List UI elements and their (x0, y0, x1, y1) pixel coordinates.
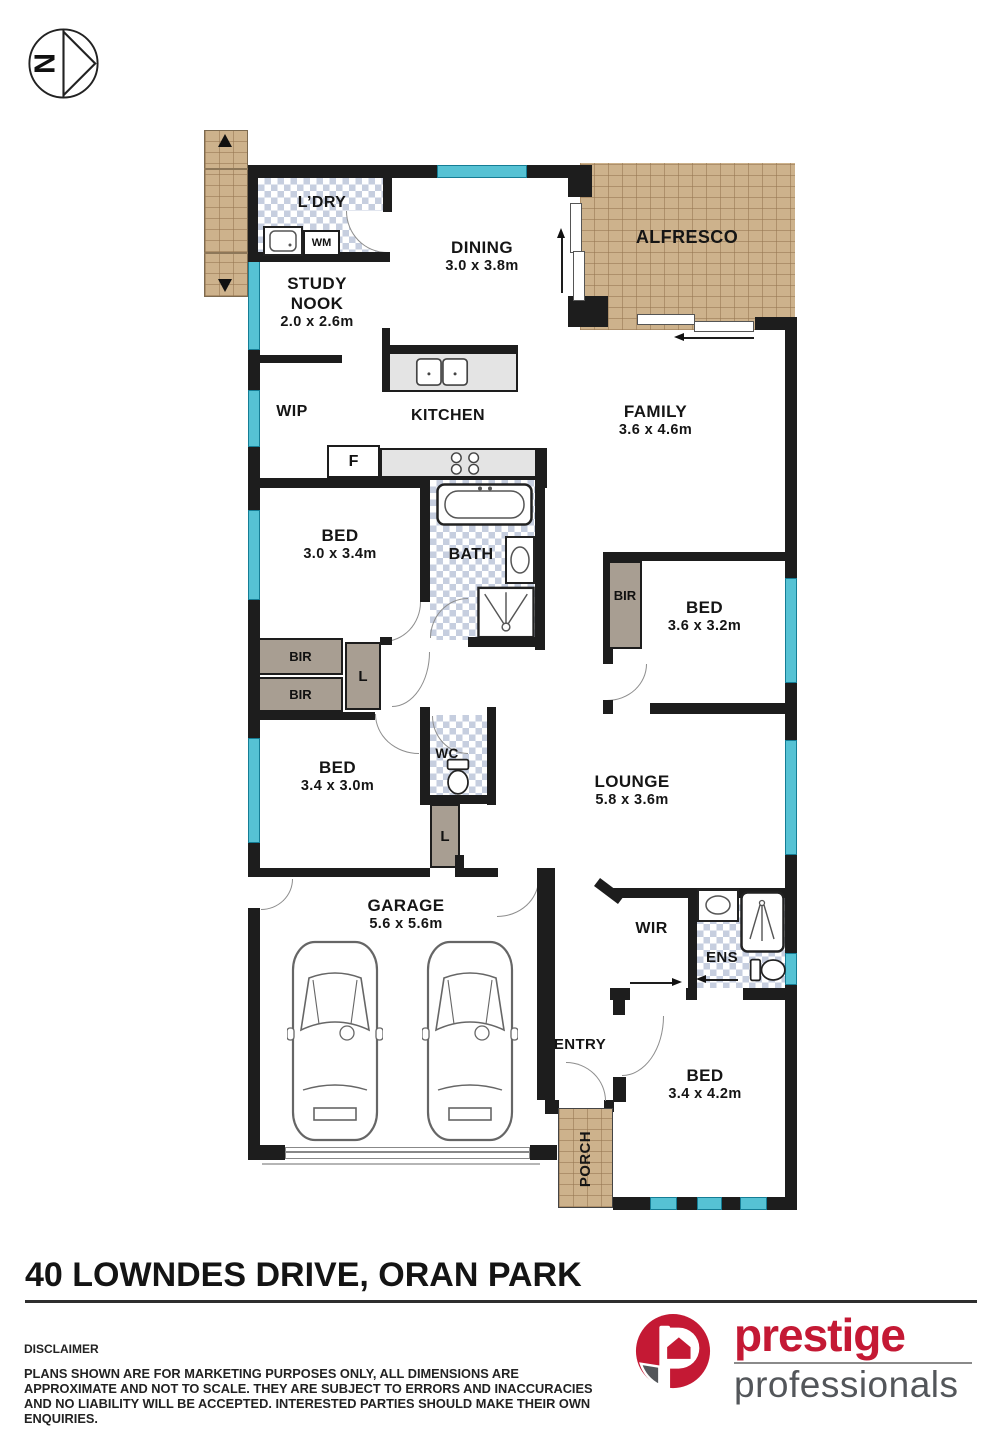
sliding-door (573, 251, 585, 301)
room-label-study-nook: STUDY NOOK2.0 x 2.6m (268, 274, 366, 331)
door-arc (383, 602, 421, 642)
shape: FAMILY (598, 402, 713, 422)
line (561, 238, 563, 293)
shape (428, 942, 512, 1140)
wall (487, 707, 496, 805)
room-label-laundry: L’DRY (283, 194, 361, 213)
wall (650, 703, 785, 714)
door-arc (607, 664, 647, 701)
room-label-wc: WC (430, 746, 464, 762)
window (785, 740, 797, 855)
room-label-porch: PORCH (558, 1112, 613, 1206)
shape (427, 372, 430, 375)
window (785, 578, 797, 683)
shape (641, 1364, 660, 1385)
double-sink (414, 358, 470, 386)
window (650, 1197, 677, 1210)
garage-door (285, 1147, 530, 1159)
agency-logo-tagline: professionals (734, 1366, 972, 1405)
car (422, 938, 518, 1144)
shape: 3.0 x 3.8m (418, 258, 546, 275)
shape: BED (285, 758, 390, 778)
shape: KITCHEN (402, 407, 494, 426)
shape: WIR (624, 920, 679, 939)
wall (603, 552, 785, 561)
shape (445, 491, 524, 518)
shape: PORCH (577, 1131, 595, 1187)
wall (785, 683, 797, 740)
shape (452, 453, 462, 463)
shape: 3.6 x 3.2m (652, 618, 757, 635)
path-paving (204, 130, 248, 297)
wall (677, 1197, 697, 1210)
room-label-bath: BATH (440, 546, 502, 565)
wall (610, 988, 630, 1000)
shape (443, 359, 467, 385)
wall (383, 178, 392, 212)
room-label-bed2: BED3.6 x 3.2m (652, 598, 757, 635)
room-label-lounge: LOUNGE5.8 x 3.6m (572, 772, 692, 809)
shape: BED (650, 1066, 760, 1086)
divider-line (25, 1300, 977, 1303)
cooktop (447, 451, 483, 476)
shape (422, 1028, 429, 1040)
shape (762, 960, 785, 980)
room-label-entry: ENTRY (546, 1036, 614, 1054)
line (204, 168, 248, 170)
shape: 2.0 x 2.6m (268, 314, 366, 331)
arrow-icon (696, 975, 706, 983)
shape: BED (652, 598, 757, 618)
sliding-door (637, 314, 695, 325)
disclaimer-title: DISCLAIMER (24, 1342, 99, 1356)
window (248, 738, 260, 843)
shape (448, 771, 468, 794)
wall (248, 712, 375, 720)
shape (478, 487, 482, 491)
shape (270, 231, 296, 251)
built-in-robe: BIR (258, 677, 343, 712)
bath-vanity (505, 536, 535, 584)
wall (785, 985, 797, 1210)
wall (258, 355, 342, 363)
room-label-bed3: BED3.4 x 3.0m (285, 758, 390, 795)
path-arrow-down-icon (218, 279, 232, 292)
window (248, 260, 260, 350)
floor-plan-page: N (0, 0, 1000, 1429)
shape (417, 359, 441, 385)
wall (785, 317, 797, 578)
shape: L (440, 828, 449, 845)
door-arc (566, 1062, 606, 1101)
toilet (445, 757, 471, 797)
path-arrow-up-icon (218, 134, 232, 147)
wall (380, 637, 392, 645)
shape: LOUNGE (572, 772, 692, 792)
shape: prestige professionals (734, 1312, 972, 1405)
wall (420, 795, 496, 804)
shape: ENTRY (546, 1036, 614, 1054)
shape: L (358, 668, 367, 685)
shape (511, 547, 529, 573)
wall (388, 345, 518, 352)
sliding-door (570, 203, 582, 253)
washing-machine: WM (303, 230, 340, 256)
wall (568, 165, 592, 197)
shape (706, 896, 730, 914)
ensuite-shower (740, 891, 785, 953)
window (437, 165, 527, 178)
shape (469, 464, 479, 474)
window (740, 1197, 767, 1210)
sliding-door-arrow (630, 982, 674, 984)
window (248, 390, 260, 447)
arrow-icon (672, 978, 682, 986)
bath-shower (477, 586, 535, 639)
door-arc (392, 652, 430, 707)
shape: BIR (289, 649, 311, 664)
shape: ENS (699, 949, 745, 967)
door-arc (261, 879, 293, 910)
ensuite-vanity (697, 889, 739, 922)
wall (537, 868, 555, 1100)
built-in-robe: BIR (258, 638, 343, 675)
room-label-dining: DINING3.0 x 3.8m (418, 238, 546, 275)
shape: L’DRY (283, 194, 361, 213)
agency-logo: prestige professionals (634, 1312, 972, 1405)
fridge-space: F (327, 445, 380, 478)
shape: BATH (440, 546, 502, 565)
shape (293, 942, 377, 1140)
compass-north-icon: N (27, 27, 100, 100)
wall (530, 1145, 557, 1160)
shape: GARAGE (345, 896, 467, 916)
line (204, 252, 248, 254)
shape: DINING (418, 238, 546, 258)
wall (420, 480, 430, 602)
room-label-ens: ENS (699, 949, 745, 967)
shape (454, 372, 457, 375)
bathtub (436, 483, 533, 526)
agency-logo-icon (634, 1312, 712, 1394)
door-arc (375, 714, 419, 754)
wall (767, 1197, 797, 1210)
wall (248, 1145, 285, 1160)
car (287, 938, 383, 1144)
linen-cupboard: L (345, 642, 381, 710)
shape: BIR (289, 687, 311, 702)
shape: F (349, 453, 359, 471)
shape: WC (430, 746, 464, 762)
line (262, 1163, 540, 1165)
room-label-family: FAMILY3.6 x 4.6m (598, 402, 713, 439)
agency-logo-name: prestige (734, 1312, 972, 1358)
arrow-icon (674, 333, 684, 341)
property-address: 40 LOWNDES DRIVE, ORAN PARK (25, 1256, 582, 1295)
shape (287, 1028, 294, 1040)
room-label-garage: GARAGE5.6 x 5.6m (345, 896, 467, 933)
wall (248, 908, 260, 1145)
shape: 3.6 x 4.6m (598, 422, 713, 439)
shape: BED (290, 526, 390, 546)
shape: STUDY NOOK (268, 274, 366, 314)
wall (535, 480, 545, 650)
room-label-bed1: BED3.0 x 3.4m (290, 526, 390, 563)
wall (743, 988, 785, 1000)
wall (248, 165, 437, 178)
room-label-alfresco: ALFRESCO (612, 227, 762, 248)
shape (511, 1028, 518, 1040)
line (286, 1151, 529, 1153)
shape: 5.6 x 5.6m (345, 916, 467, 933)
wall (613, 1077, 626, 1102)
window (248, 510, 260, 600)
shape: BIR (614, 588, 636, 603)
wall (722, 1197, 740, 1210)
room-label-wir: WIR (624, 920, 679, 939)
wall (258, 868, 430, 877)
laundry-sink (263, 226, 303, 256)
line (684, 337, 754, 339)
shape: WM (312, 237, 332, 249)
shape: ALFRESCO (612, 227, 762, 248)
built-in-robe: BIR (608, 561, 642, 649)
shape (488, 487, 492, 491)
wall (460, 868, 498, 877)
room-label-wip: WIP (268, 403, 316, 422)
shape (751, 960, 761, 981)
shape (376, 1028, 383, 1040)
shape (469, 453, 479, 463)
arrow-icon (557, 228, 565, 238)
shape (748, 957, 788, 983)
wall (420, 707, 430, 805)
door-arc (497, 879, 539, 917)
wall (468, 637, 545, 647)
sliding-door (694, 321, 754, 332)
shape: 3.0 x 3.4m (290, 546, 390, 563)
room-label-kitchen: KITCHEN (402, 407, 494, 426)
wall (686, 988, 697, 1000)
compass-label: N (29, 53, 61, 74)
ensuite-toilet (755, 950, 781, 990)
wall (545, 1100, 559, 1114)
window (697, 1197, 722, 1210)
shape: 3.4 x 4.2m (650, 1086, 760, 1103)
wall (603, 700, 613, 714)
room-label-bed4: BED3.4 x 4.2m (650, 1066, 760, 1103)
shape (452, 464, 462, 474)
shape (289, 244, 292, 247)
shape: WIP (268, 403, 316, 422)
disclaimer-body: PLANS SHOWN ARE FOR MARKETING PURPOSES O… (24, 1366, 599, 1426)
wall (613, 1197, 650, 1210)
sliding-door-arrow (704, 979, 738, 981)
shape: 5.8 x 3.6m (572, 792, 692, 809)
wall (785, 855, 797, 953)
shape: 3.4 x 3.0m (285, 778, 390, 795)
wall (613, 1000, 625, 1015)
